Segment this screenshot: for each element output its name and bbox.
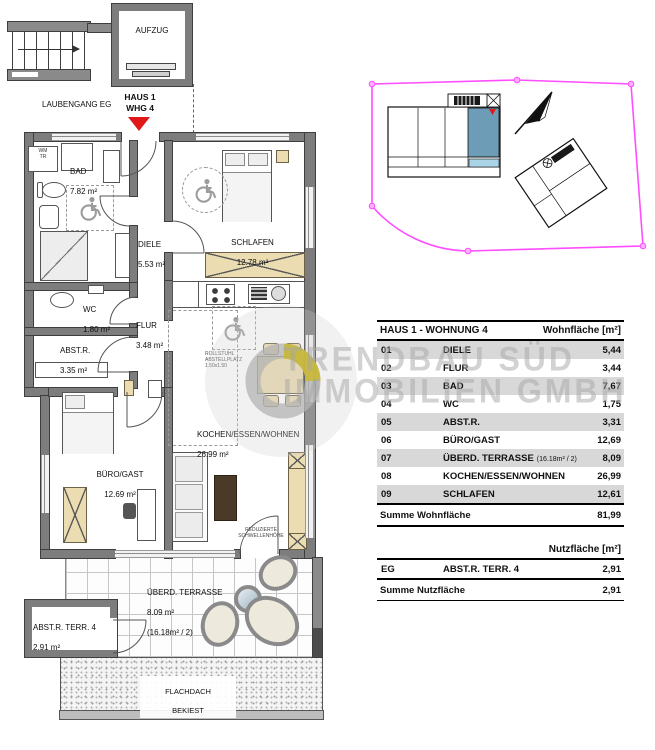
room-area: 26.99 m² [197,450,229,459]
unit-balcony-cell [469,159,499,167]
table-row: 01 DIELE 5,44 [377,341,624,359]
terrace-storage-door-gap [109,618,117,650]
bad-toilet [42,182,66,198]
table-row: 06 BÜRO/GAST 12,69 [377,431,624,449]
stair-lift-connector [88,24,114,32]
table-sum-nutzflaeche: Summe Nutzfläche 2,91 [377,578,624,601]
sofa-cushion-2 [175,484,203,510]
walkway-label: LAUBENGANG EG [42,100,111,110]
nightstand-schlafen [276,150,289,163]
row-value: 12,61 [577,489,624,500]
nightstand-guest [124,380,134,396]
kitchen-sink-bowl [271,286,286,301]
table-header: HAUS 1 - WOHNUNG 4 Wohnfläche [m²] [377,320,624,341]
room-area: 12.78 m² [237,258,269,267]
row-value: 1,75 [577,399,624,410]
row-name: ABST.R. TERR. 4 [443,564,577,575]
wheelchair-icon [192,177,218,203]
table-row-nutz: EG ABST.R. TERR. 4 2,91 [377,560,624,578]
row-value: 3,44 [577,363,624,374]
row-num: 08 [377,471,443,482]
wheelchair-icon [77,195,103,221]
room-label-terrasse: ÜBERD. TERRASSE 8.09 m² (16.18m² / 2) [147,578,222,638]
table-nutzflaeche-header: Nutzfläche [m²] [377,541,624,560]
row-name: FLUR [443,363,577,374]
room-name: WC [83,305,96,314]
bad-toilet-tank [37,182,43,198]
room-area: 2.91 m² [33,643,60,652]
north-arrow-icon [515,92,552,134]
room-label-diele: DIELE 5.53 m² [138,230,165,270]
row-value: 7,67 [577,381,624,392]
room-area: 5.53 m² [138,260,165,269]
room-label-wc: WC 1.80 m² [83,295,110,335]
area-table: HAUS 1 - WOHNUNG 4 Wohnfläche [m²] 01 DI… [377,320,624,601]
door-swing-entrance [121,141,156,176]
sum-value: 2,91 [603,585,622,596]
bad-cabinet [103,150,120,183]
bed-pillow-left [225,153,245,166]
coffee-table [214,475,237,521]
floorplan-page: AUFZUG LAUBENGANG EG HAUS 1 WHG 4 WM TR [0,0,655,750]
wall-left-step [25,388,49,396]
room-area: 3.48 m² [136,341,163,350]
row-name: SCHLAFEN [443,489,577,500]
row-value: 8,09 [577,453,624,464]
room-name: SCHLAFEN [231,238,274,247]
bed-blanket [223,172,271,222]
bad-shower [40,231,88,281]
table-row: 09 SCHLAFEN 12,61 [377,485,624,503]
room-area: 1.80 m² [83,325,110,334]
room-label-flur: FLUR 3.48 m² [136,311,163,351]
room-label-kochen: KOCHEN/ESSEN/WOHNEN 26.99 m² [197,420,299,460]
row-value: 26,99 [577,471,624,482]
unit-marker-arrow [128,117,150,131]
room-label-bad: BAD 7.82 m² [70,157,97,197]
sum-label: Summe Wohnfläche [380,510,471,521]
stair-top-wall [8,22,90,31]
window-buero-left [41,455,49,513]
sum-label: Summe Nutzfläche [380,585,465,596]
room-label-abstr: ABST.R. 3.35 m² [60,336,90,376]
room-name: ÜBERD. TERRASSE [147,588,222,597]
elevator-door-outer [126,63,176,70]
row-name: BÜRO/GAST [443,435,577,446]
table-row: 08 KOCHEN/ESSEN/WOHNEN 26,99 [377,467,624,485]
bed-pillow-right [248,153,268,166]
table-row: 03 BAD 7,67 [377,377,624,395]
room-name: FLUR [136,321,157,330]
room-name: ABST.R. [60,346,90,355]
row-num: 02 [377,363,443,374]
wall-bad-right-upper [130,141,137,196]
wheelchair-zone-kueche [212,306,256,350]
kitchen-drainer [251,287,267,300]
door-swing-schlafen [172,221,204,253]
room-name: ABST.R. TERR. 4 [33,623,96,632]
wall-wc-bottom [25,328,137,335]
row-value: 12,69 [577,435,624,446]
row-name: BAD [443,381,577,392]
desk-chair [123,503,136,519]
row-num: 07 [377,453,443,464]
schwelle-note: REDUZIERTE SCHWELLENHÖHE [238,528,284,540]
wall-schlafen-left-stub [165,253,172,281]
stair-direction-arrow [72,45,80,53]
table-col-header: Wohnfläche [m²] [543,325,621,336]
wall-flur-left-a [130,283,137,297]
room-name-2: BEKIEST [172,706,204,715]
room-label-schlafen: SCHLAFEN 12.78 m² [205,228,300,268]
stair-direction-line [18,49,74,50]
row-name: DIELE [443,345,577,356]
elevator-label: AUFZUG [119,26,185,36]
room-area: 12.69 m² [104,490,136,499]
dining-chair-1 [263,343,279,355]
wheelchair-icon [221,315,247,341]
room-note: (16.18m² / 2) [147,628,193,637]
boundary-dash-line [193,84,195,133]
wall-bad-right-lower [130,226,137,283]
row-name-text: ÜBERD. TERRASSE [443,453,534,464]
room-area: 3.35 m² [60,366,87,375]
row-name: ABST.R. [443,417,577,428]
rollstuhl-note: ROLLSTUHL ABSTELLPLATZ 1.50x1.50 [205,352,242,369]
window-essen-right [305,335,315,402]
row-num: 03 [377,381,443,392]
table-row: 02 FLUR 3,44 [377,359,624,377]
table-row: 04 WC 1,75 [377,395,624,413]
wall-bottom-a [41,550,115,558]
diele-cabinet [115,233,130,278]
room-name: FLACHDACH [165,687,211,696]
room-name: BÜRO/GAST [96,470,143,479]
table-row: 05 ABST.R. 3,31 [377,413,624,431]
window-schlafen-right [305,187,315,248]
dining-chair-2 [285,343,301,355]
table-title: HAUS 1 - WOHNUNG 4 [380,325,488,336]
row-num: 06 [377,435,443,446]
window-wohnen-bottom [115,550,235,558]
row-value: 5,44 [577,345,624,356]
wall-schlafen-left-upper [165,141,172,221]
washer-dryer-label: WM TR [28,149,58,161]
row-note: (16.18m² / 2) [537,456,577,463]
room-name: BAD [70,167,86,176]
nutz-col-header: Nutzfläche [m²] [549,544,621,555]
window-wohnen-right [305,445,315,538]
window-schlafen-top [196,133,289,141]
row-num: 05 [377,417,443,428]
table-row: 07 ÜBERD. TERRASSE(16.18m² / 2) 8,09 [377,449,624,467]
room-name: DIELE [138,240,161,249]
kitchen-cabinet [172,281,199,308]
elevator-door-inner [132,71,170,77]
bed-guest-blanket [63,412,113,454]
row-num: 01 [377,345,443,356]
room-label-abstr-terr: ABST.R. TERR. 4 2.91 m² [33,613,96,653]
row-name: WC [443,399,577,410]
window-bad-top [52,133,116,141]
terrace-right-post [313,628,322,657]
row-num: EG [377,564,443,575]
row-name: ÜBERD. TERRASSE(16.18m² / 2) [443,453,577,464]
wc-toilet [50,292,74,308]
wall-bottom-b [235,550,240,558]
row-value: 2,91 [577,564,624,575]
row-name: KOCHEN/ESSEN/WOHNEN [443,471,577,482]
bad-sink [39,205,59,229]
room-name: KOCHEN/ESSEN/WOHNEN [197,430,299,439]
dining-chair-4 [285,395,301,407]
row-value: 3,31 [577,417,624,428]
buero-shelf-box [148,380,162,398]
room-area: 7.82 m² [70,187,97,196]
door-swing-wc [110,297,137,324]
building-haus2 [515,139,607,228]
sofa-cushion-3 [175,512,203,538]
bed-guest-pillow [65,395,85,409]
wall-bad-bottom [25,283,137,290]
room-label-flachdach: FLACHDACH BEKIEST [140,676,236,718]
dining-table [257,356,304,394]
table-sum-wohnflaeche: Summe Wohnfläche 81,99 [377,503,624,527]
row-num: 04 [377,399,443,410]
dining-chair-3 [263,395,279,407]
stair-bottom-notch [12,72,38,77]
row-num: 09 [377,489,443,500]
building-haus1 [388,94,500,177]
wc-sink [88,285,104,294]
kitchen-stove [206,284,235,305]
unit-marker-label: HAUS 1 WHG 4 [116,92,164,113]
site-plan [365,70,655,265]
room-area: 8.09 m² [147,608,174,617]
wall-left-upper [25,133,33,396]
wheelchair-zone-schlafen [182,167,228,213]
highlighted-unit [468,108,499,157]
sum-value: 81,99 [597,510,621,521]
room-label-buero: BÜRO/GAST 12.69 m² [80,460,160,500]
